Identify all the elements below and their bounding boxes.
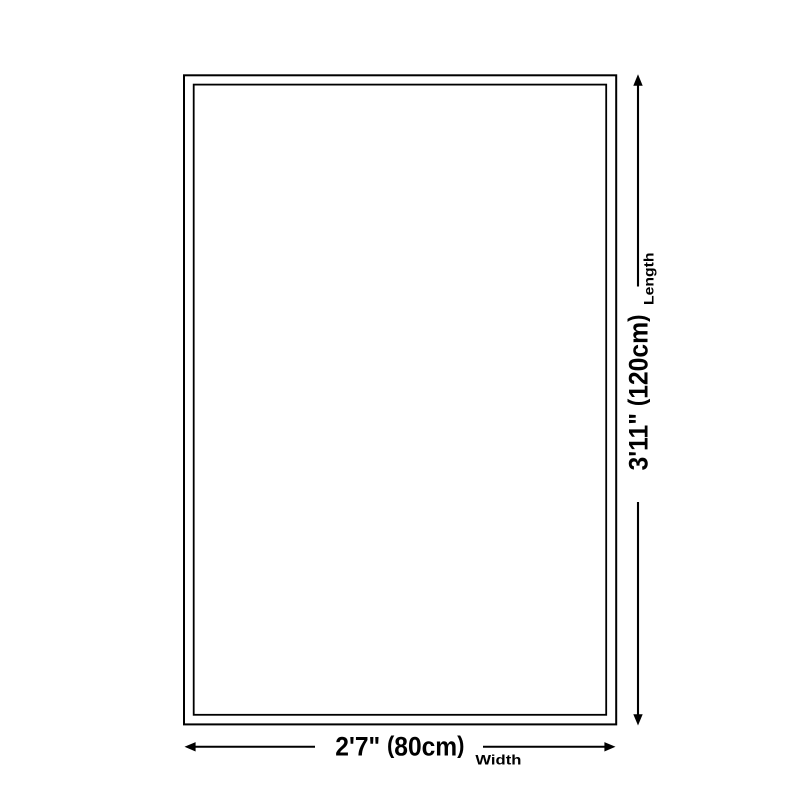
svg-text:Length: Length [641, 253, 657, 306]
svg-text:Width: Width [475, 752, 521, 768]
svg-text:3'11" (120cm): 3'11" (120cm) [623, 315, 654, 471]
svg-text:2'7" (80cm): 2'7" (80cm) [335, 731, 464, 762]
